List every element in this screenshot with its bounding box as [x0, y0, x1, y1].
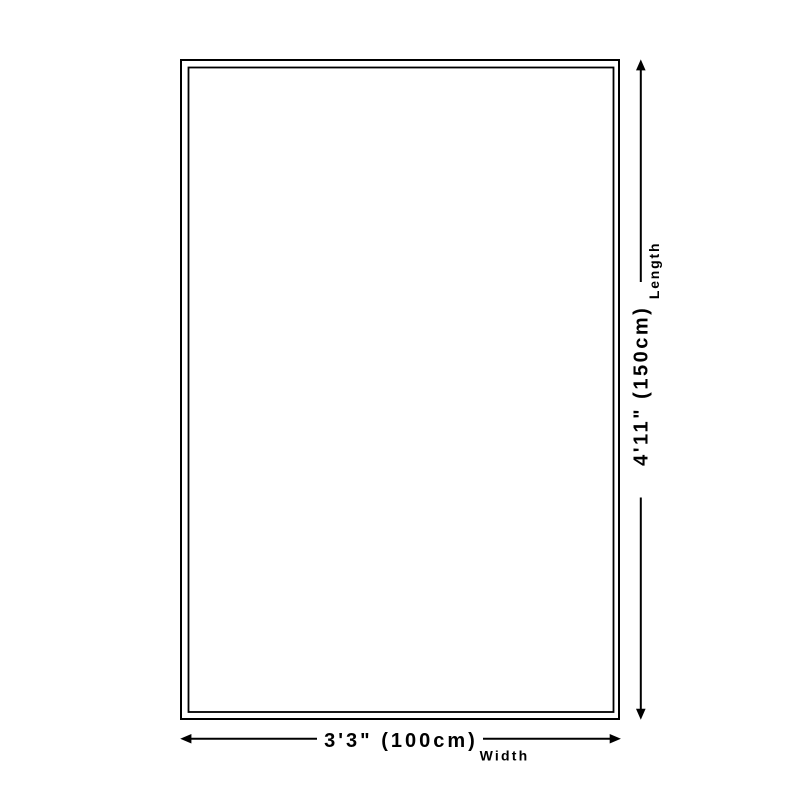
- svg-text:3'3" (100cm): 3'3" (100cm): [324, 730, 478, 752]
- svg-text:4'11" (150cm): 4'11" (150cm): [630, 306, 652, 466]
- svg-text:Width: Width: [480, 747, 530, 763]
- svg-text:Length: Length: [646, 242, 662, 299]
